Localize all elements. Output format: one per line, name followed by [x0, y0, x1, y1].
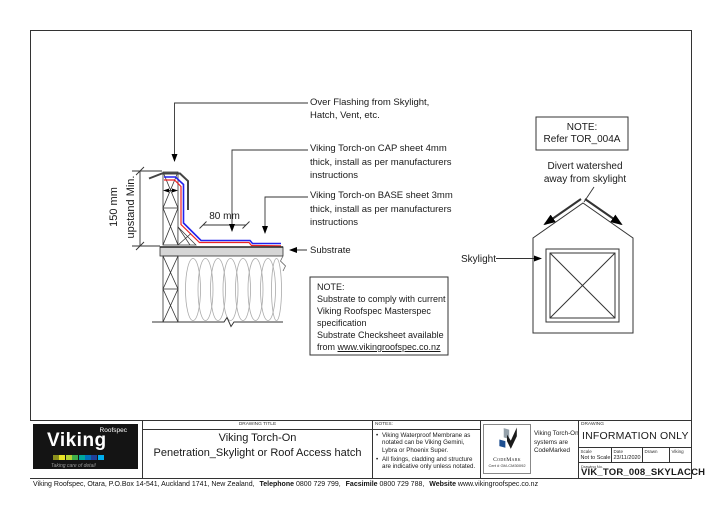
substrate-note-last-line: from www.vikingroofspec.co.nz: [317, 341, 441, 355]
dim-150-label: upstand Min.: [125, 162, 137, 252]
drawn-by-cell: Viking: [669, 448, 692, 462]
logo-color-chip: [85, 455, 91, 460]
insulation-batts: [186, 259, 282, 321]
footer-address: Viking Roofspec, Otara, P.O.Box 14-541, …: [33, 481, 255, 488]
footer-website: www.vikingroofspec.co.nz: [458, 481, 538, 488]
information-only-text: INFORMATION ONLY: [582, 430, 689, 442]
annotation-base-sheet: Viking Torch-on BASE sheet 3mm thick, in…: [310, 189, 453, 230]
section-bottom-line: [152, 318, 283, 327]
drawing-number: VIK_TOR_008_SKYLACCH: [581, 467, 705, 478]
section-right-break: [281, 256, 286, 271]
note-item: •All fixings, cladding and structure are…: [376, 456, 478, 471]
timber-stud-below: [163, 256, 178, 322]
footer-fax-label: Facsimile: [346, 481, 378, 488]
codemark-side-text: Viking Torch-On systems are CodeMarked: [534, 430, 579, 456]
viking-logo: Roofspec Viking Taking care of detail: [33, 424, 138, 469]
drawing-title-line1: Viking Torch-On: [143, 432, 372, 444]
date-value: 23/11/2020: [614, 455, 641, 461]
logo-color-chip: [98, 455, 104, 460]
dim-150-text: 150 mm: [108, 162, 120, 252]
footer-phone-label: Telephone: [260, 481, 294, 488]
notes-list: •Viking Waterproof Membrane as notated c…: [376, 432, 478, 472]
drawing-sheet: 150 mm upstand Min. 80 mm Over Flashing …: [0, 0, 721, 510]
footer-fax: 0800 729 788,: [380, 481, 425, 488]
title-block: Roofspec Viking Taking care of detail DR…: [30, 420, 691, 478]
logo-color-chip: [79, 455, 85, 460]
drawn-label: Drawn: [645, 449, 658, 454]
codemark-cell: CodeMark Cert # GM-CM30092 Viking Torch-…: [480, 421, 578, 478]
logo-color-chip: [59, 455, 65, 460]
skylight-label: Skylight: [461, 253, 496, 267]
leader-over-flashing: [175, 103, 309, 161]
roofspec-url-link[interactable]: www.vikingroofspec.co.nz: [338, 342, 441, 352]
date-label: Date: [614, 449, 624, 454]
logo-tagline: Taking care of detail: [51, 463, 96, 469]
codemark-box: CodeMark Cert # GM-CM30092: [483, 424, 531, 474]
skylight-plan-drawing: [496, 117, 633, 333]
dim-80-text: 80 mm: [203, 210, 246, 224]
logo-color-chip: [72, 455, 78, 460]
note-item-text: All fixings, cladding and structure are …: [382, 456, 478, 471]
logo-color-chip: [53, 455, 59, 460]
drawing-title-line2: Penetration_Skylight or Roof Access hatc…: [143, 447, 372, 459]
note-item: •Viking Waterproof Membrane as notated c…: [376, 432, 478, 454]
footer-phone: 0800 729 799,: [296, 481, 341, 488]
diverter-arrow-right: [585, 199, 621, 224]
codemark-cert: Cert # GM-CM30092: [484, 463, 530, 468]
note-item-text: Viking Waterproof Membrane as notated ca…: [382, 432, 478, 454]
notes-header: NOTES:: [373, 421, 480, 430]
logo-color-chip: [91, 455, 97, 460]
annotation-cap-sheet: Viking Torch-on CAP sheet 4mm thick, ins…: [310, 142, 452, 183]
logo-color-chip: [66, 455, 72, 460]
substrate-band: [160, 247, 283, 256]
footer-website-label: Website: [429, 481, 456, 488]
sheet-footer: Viking Roofspec, Otara, P.O.Box 14-541, …: [33, 481, 541, 488]
notes-cell: NOTES: •Viking Waterproof Membrane as no…: [372, 421, 480, 478]
diverter-arrow-left: [545, 199, 581, 224]
drawing-title-header: DRAWING TITLE: [143, 421, 372, 430]
annotation-over-flashing: Over Flashing from Skylight, Hatch, Vent…: [310, 96, 429, 123]
logo-brand-text: Viking: [47, 430, 107, 452]
substrate-note-body: NOTE: Substrate to comply with current V…: [317, 281, 446, 341]
drawn-cell: Drawn: [642, 448, 669, 462]
annotation-substrate: Substrate: [310, 244, 351, 258]
scale-label: Scale: [581, 449, 592, 454]
date-cell: Date 23/11/2020: [611, 448, 642, 462]
drawing-title-cell: DRAWING TITLE Viking Torch-On Penetratio…: [142, 421, 372, 478]
drawing-info-cell: DRAWING INFORMATION ONLY Scale Not to Sc…: [578, 421, 691, 478]
timber-upstand: [163, 172, 178, 245]
plan-note-ref: Refer TOR_004A: [536, 133, 628, 147]
scale-cell: Scale Not to Scale: [579, 448, 611, 462]
scale-value: Not to Scale: [581, 455, 611, 461]
drawn-by-label: Viking: [672, 449, 684, 454]
substrate-note-prefix: from: [317, 342, 338, 352]
leader-base-sheet: [265, 197, 308, 233]
codemark-logo-icon: [495, 427, 519, 451]
divert-watershed-label: Divert watershed away from skylight: [538, 160, 632, 186]
drawing-label: DRAWING: [581, 422, 604, 427]
scale-date-row: Scale Not to Scale Date 23/11/2020 Drawn…: [579, 447, 692, 463]
logo-color-strip: [53, 455, 104, 460]
logo-cell: Roofspec Viking Taking care of detail: [30, 421, 142, 478]
